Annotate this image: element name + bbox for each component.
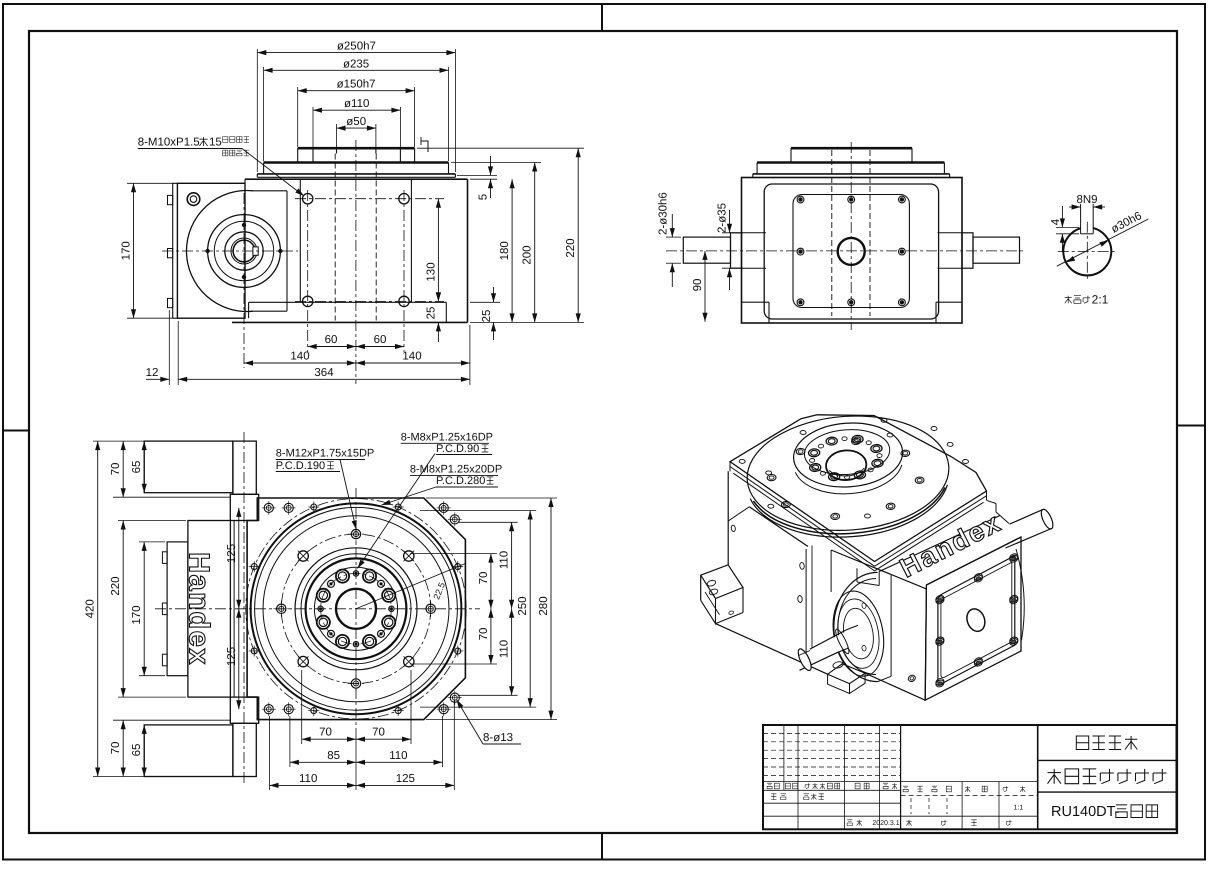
svg-text:140: 140	[290, 351, 309, 363]
svg-text:60: 60	[325, 334, 338, 346]
svg-text:70: 70	[478, 628, 490, 641]
svg-text:P.C.D.190: P.C.D.190	[276, 460, 325, 472]
svg-text:2-ø35: 2-ø35	[717, 203, 729, 233]
svg-text:130: 130	[425, 262, 437, 281]
svg-text:200: 200	[522, 245, 534, 264]
svg-text:110: 110	[299, 773, 317, 785]
svg-text:ø250h7: ø250h7	[337, 41, 376, 53]
svg-text:Handex: Handex	[183, 552, 215, 666]
svg-text:12: 12	[146, 367, 159, 379]
svg-text:70: 70	[372, 727, 385, 739]
svg-text:2-ø30h6: 2-ø30h6	[658, 192, 670, 235]
svg-text:8-M12xP1.75x15DP: 8-M12xP1.75x15DP	[276, 448, 374, 460]
svg-text:420: 420	[85, 599, 97, 618]
svg-text:P.C.D.90: P.C.D.90	[436, 443, 479, 455]
svg-text:25: 25	[425, 307, 437, 320]
svg-text:180: 180	[499, 241, 511, 260]
svg-text:110: 110	[499, 640, 511, 658]
svg-text:2:1: 2:1	[1092, 293, 1109, 307]
svg-text:ø50: ø50	[346, 116, 366, 128]
svg-text:125: 125	[226, 544, 238, 563]
svg-text:4: 4	[1050, 218, 1062, 225]
svg-text:8N9: 8N9	[1076, 194, 1097, 206]
svg-text:110: 110	[389, 750, 407, 762]
svg-text:70: 70	[110, 463, 122, 476]
svg-text:25: 25	[481, 310, 493, 323]
svg-text:70: 70	[110, 742, 122, 755]
svg-text:70: 70	[478, 572, 490, 585]
svg-text:85: 85	[327, 750, 340, 762]
svg-text:125: 125	[226, 647, 238, 666]
svg-text:70: 70	[319, 727, 332, 739]
svg-text:65: 65	[131, 744, 143, 757]
svg-text:2020.3.1: 2020.3.1	[872, 820, 899, 827]
svg-text:5: 5	[478, 194, 490, 200]
svg-text:364: 364	[314, 367, 334, 379]
svg-text:8-ø13: 8-ø13	[483, 732, 513, 744]
svg-text:140: 140	[402, 351, 421, 363]
svg-text:60: 60	[374, 334, 387, 346]
svg-text:ø150h7: ø150h7	[337, 79, 376, 91]
svg-text:280: 280	[538, 596, 550, 615]
svg-text:220: 220	[565, 238, 577, 257]
svg-text:8-M10xP1.5: 8-M10xP1.5	[138, 137, 200, 149]
svg-text:P.C.D.280: P.C.D.280	[436, 475, 485, 487]
svg-text:1:1: 1:1	[1014, 805, 1024, 812]
svg-text:90: 90	[692, 279, 704, 292]
svg-text:8-M8xP1.25x20DP: 8-M8xP1.25x20DP	[410, 463, 502, 475]
svg-text:65: 65	[131, 461, 143, 474]
svg-text:220: 220	[110, 576, 122, 595]
svg-text:125: 125	[396, 773, 415, 785]
svg-text:15: 15	[209, 137, 222, 149]
svg-text:110: 110	[499, 551, 511, 569]
svg-text:RU140DT-: RU140DT-	[1051, 804, 1120, 820]
svg-text:ø110: ø110	[344, 98, 369, 110]
svg-text:170: 170	[131, 605, 143, 624]
svg-text:8-M8xP1.25x16DP: 8-M8xP1.25x16DP	[401, 431, 493, 443]
svg-text:170: 170	[121, 241, 133, 260]
svg-text:ø235: ø235	[343, 58, 369, 70]
svg-text:250: 250	[517, 596, 529, 615]
